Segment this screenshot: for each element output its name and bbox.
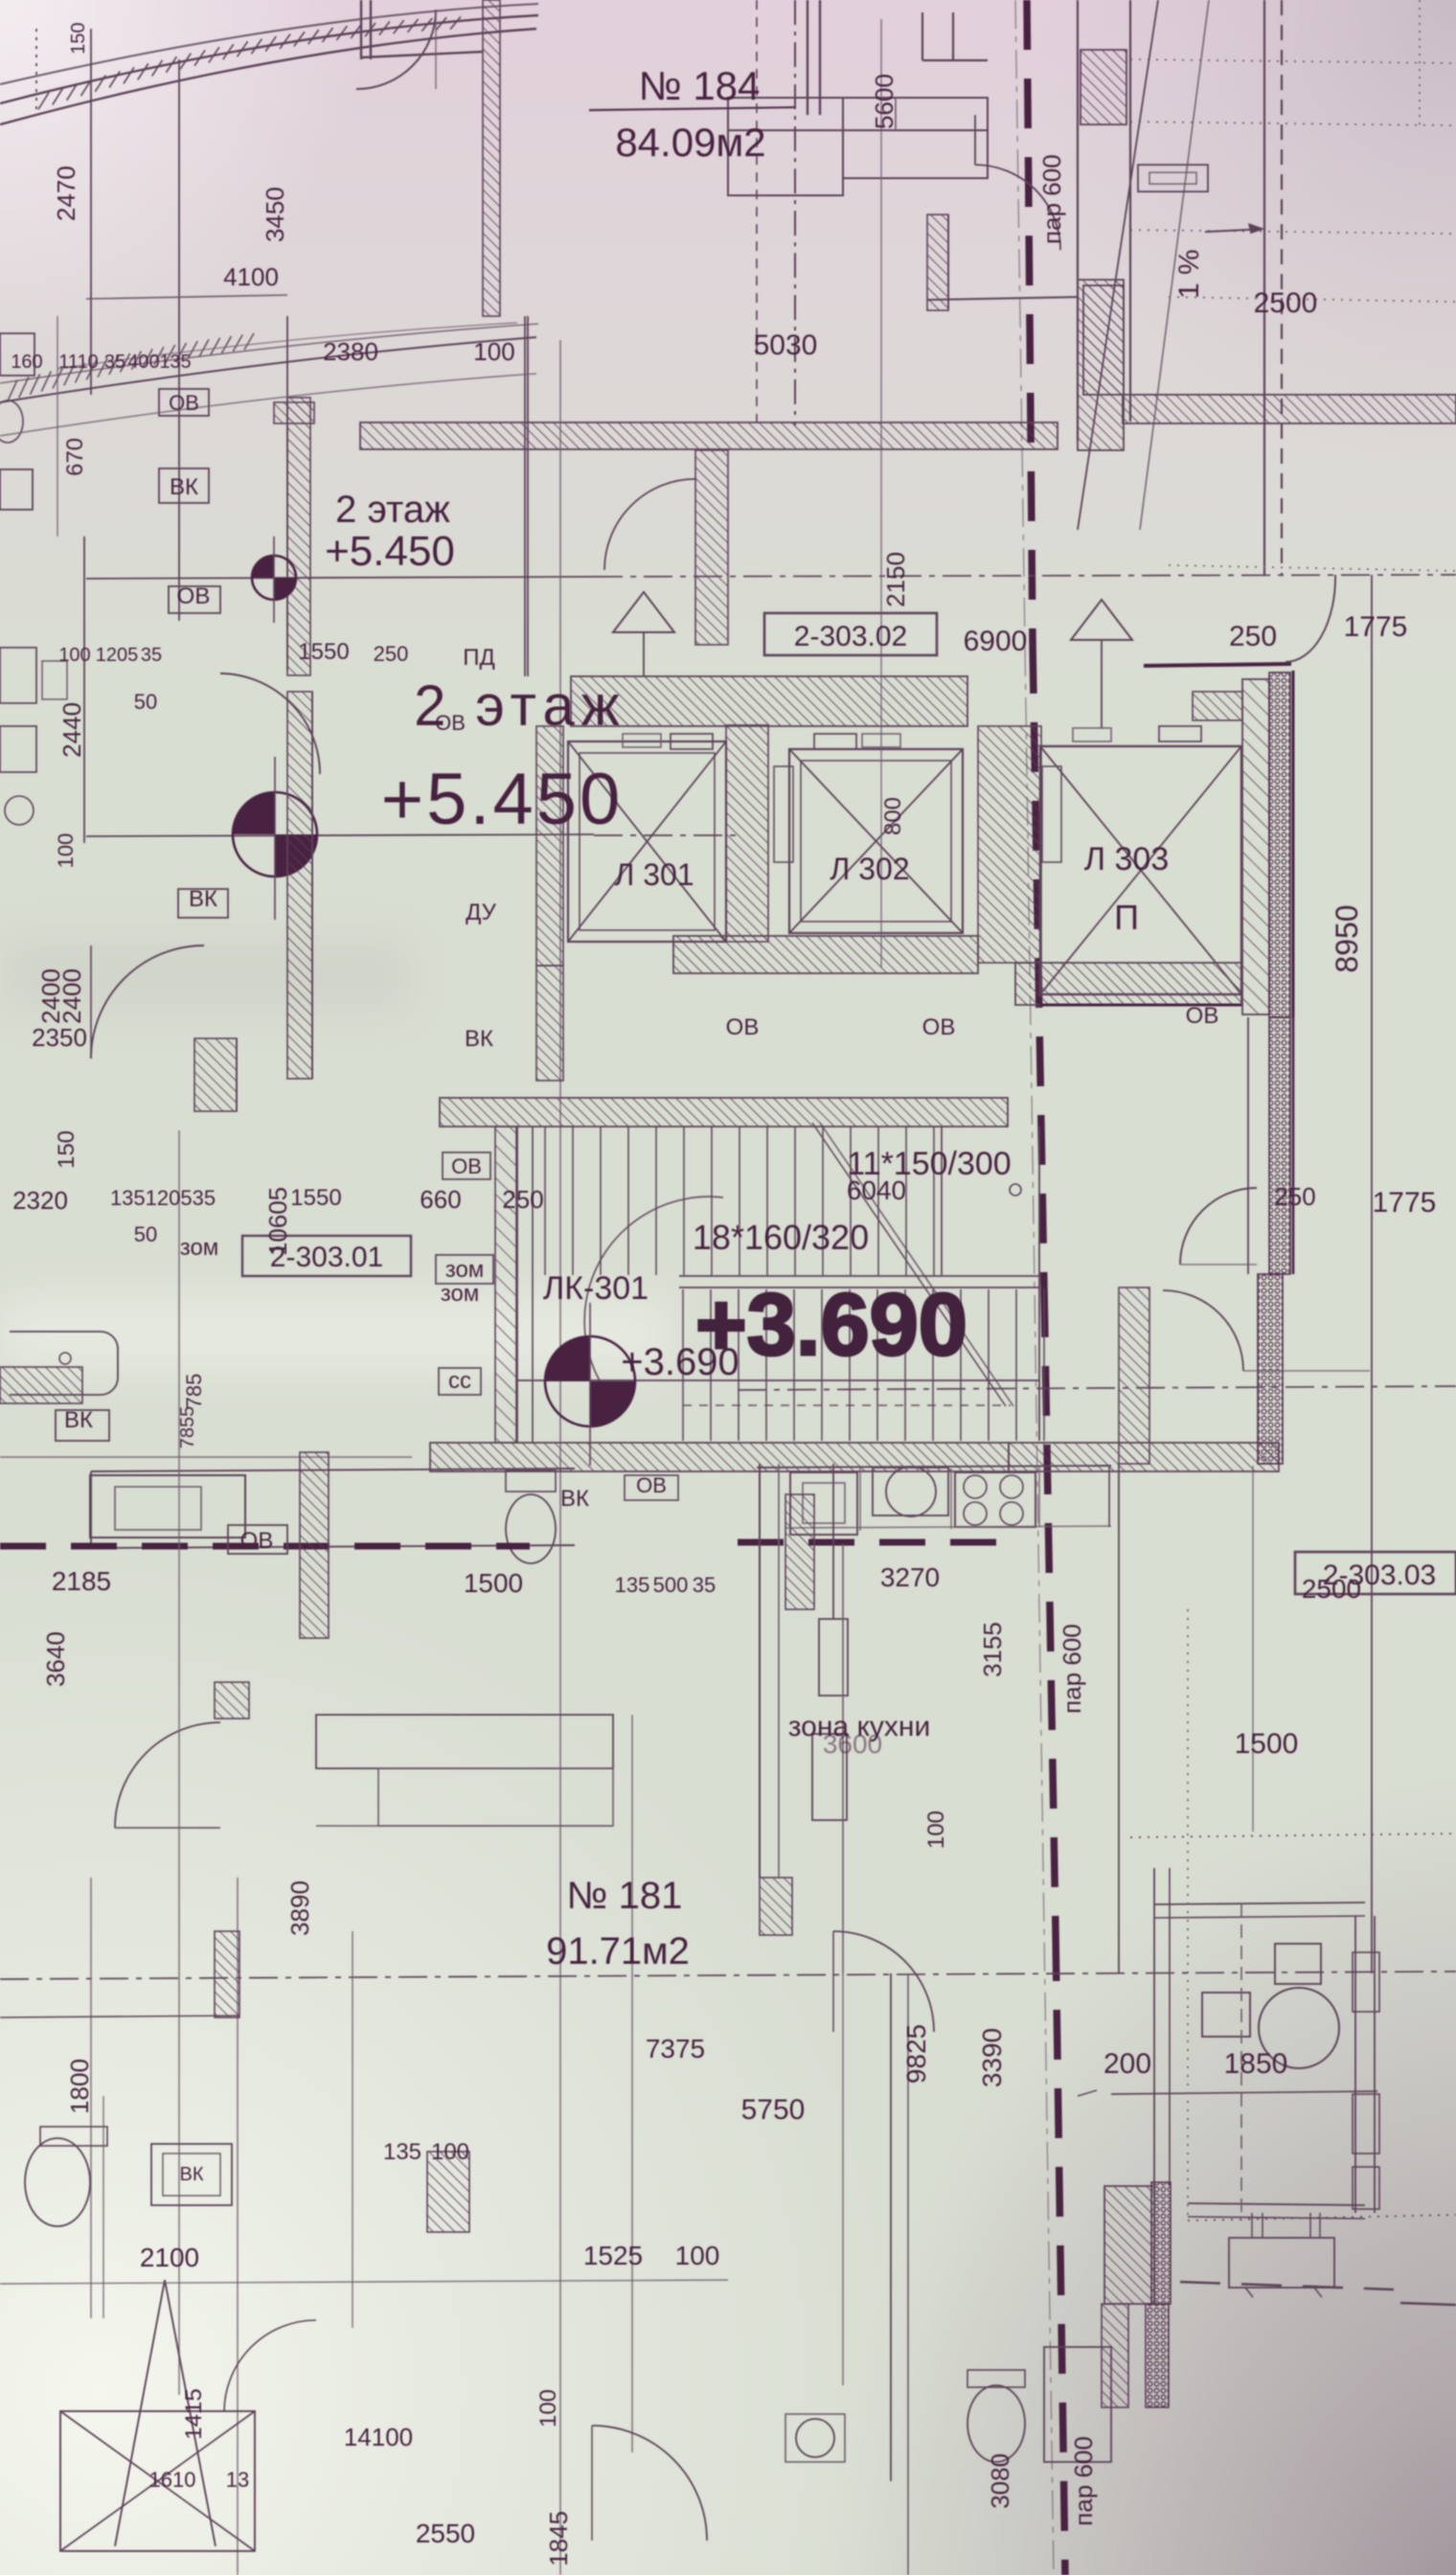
svg-text:135: 135 <box>615 1573 650 1597</box>
svg-text:ВК: ВК <box>170 474 198 500</box>
svg-text:ОВ: ОВ <box>169 391 199 415</box>
svg-text:+5.450: +5.450 <box>325 528 455 575</box>
svg-text:4100: 4100 <box>223 262 279 291</box>
svg-text:250: 250 <box>374 642 409 666</box>
svg-text:пар 600: пар 600 <box>1069 2436 1098 2526</box>
svg-text:Л 301: Л 301 <box>614 857 694 892</box>
svg-text:3450: 3450 <box>261 187 289 242</box>
svg-text:3155: 3155 <box>978 1622 1007 1677</box>
svg-text:ОВ: ОВ <box>636 1473 667 1497</box>
svg-text:1800: 1800 <box>65 2059 94 2114</box>
svg-text:2-303.02: 2-303.02 <box>794 621 907 652</box>
svg-text:3890: 3890 <box>285 1880 314 1936</box>
svg-text:2100: 2100 <box>140 2243 199 2272</box>
svg-text:3080: 3080 <box>986 2453 1014 2509</box>
svg-text:ЛК-301: ЛК-301 <box>543 1270 648 1307</box>
svg-text:400: 400 <box>127 352 159 373</box>
svg-text:250: 250 <box>1274 1182 1315 1211</box>
svg-text:1550: 1550 <box>290 1185 341 1211</box>
svg-text:13: 13 <box>226 2468 249 2492</box>
svg-text:100: 100 <box>58 645 90 666</box>
svg-text:2150: 2150 <box>881 552 910 607</box>
svg-text:1205: 1205 <box>96 645 139 666</box>
svg-text:8950: 8950 <box>1330 904 1364 972</box>
svg-text:ВК: ВК <box>64 1407 93 1433</box>
svg-text:135120535: 135120535 <box>110 1186 216 1210</box>
svg-text:1525: 1525 <box>583 2241 643 2270</box>
svg-text:1775: 1775 <box>1344 611 1408 643</box>
svg-text:250: 250 <box>1229 621 1277 652</box>
svg-text:250: 250 <box>502 1185 543 1214</box>
svg-text:2320: 2320 <box>12 1186 68 1215</box>
svg-text:800: 800 <box>880 797 906 835</box>
svg-text:50: 50 <box>134 690 157 714</box>
svg-text:2550: 2550 <box>416 2518 475 2548</box>
svg-text:зом: зом <box>445 1257 485 1283</box>
svg-text:сс: сс <box>448 1368 471 1394</box>
svg-text:ОВ: ОВ <box>435 711 466 735</box>
svg-text:2400: 2400 <box>36 968 65 1024</box>
svg-text:ОВ: ОВ <box>1186 1003 1219 1029</box>
svg-text:100: 100 <box>431 2139 469 2165</box>
svg-text:2440: 2440 <box>57 702 86 758</box>
svg-text:785: 785 <box>182 1374 206 1409</box>
svg-text:2500: 2500 <box>1254 287 1318 319</box>
svg-text:ОВ: ОВ <box>240 1528 274 1554</box>
svg-text:7855: 7855 <box>177 1406 198 1449</box>
svg-text:3390: 3390 <box>977 2028 1007 2087</box>
svg-text:ОВ: ОВ <box>922 1014 956 1040</box>
svg-text:84.09м2: 84.09м2 <box>615 120 765 165</box>
svg-text:+3.690: +3.690 <box>695 1276 967 1374</box>
svg-text:зом: зом <box>180 1235 219 1261</box>
svg-text:ОВ: ОВ <box>177 583 211 609</box>
svg-text:150: 150 <box>54 1130 80 1169</box>
svg-text:ВК: ВК <box>189 886 217 912</box>
svg-text:5600: 5600 <box>870 74 899 129</box>
svg-text:1500: 1500 <box>1235 1728 1299 1760</box>
svg-text:ДУ: ДУ <box>466 900 497 925</box>
svg-text:6900: 6900 <box>964 626 1028 657</box>
svg-text:100: 100 <box>923 1811 949 1849</box>
svg-text:14100: 14100 <box>344 2423 413 2451</box>
svg-text:35: 35 <box>693 1573 716 1597</box>
svg-text:2 этаж: 2 этаж <box>335 489 450 531</box>
svg-text:1775: 1775 <box>1373 1187 1437 1219</box>
svg-text:1 %: 1 % <box>1173 249 1205 299</box>
svg-text:ВК: ВК <box>560 1486 589 1512</box>
svg-text:ВК: ВК <box>465 1026 493 1052</box>
svg-text:ОВ: ОВ <box>726 1014 760 1040</box>
svg-text:№ 184: № 184 <box>639 63 761 108</box>
svg-text:3270: 3270 <box>880 1562 940 1592</box>
svg-text:35: 35 <box>141 645 162 666</box>
svg-text:100: 100 <box>473 337 514 366</box>
svg-text:2350: 2350 <box>32 1023 87 1052</box>
svg-text:5750: 5750 <box>741 2094 806 2126</box>
svg-text:6040: 6040 <box>847 1175 906 1205</box>
svg-text:100: 100 <box>54 833 78 869</box>
svg-text:135: 135 <box>159 352 191 373</box>
svg-text:660: 660 <box>420 1185 461 1214</box>
svg-text:91.71м2: 91.71м2 <box>546 1930 690 1972</box>
svg-text:670: 670 <box>62 438 88 476</box>
svg-text:1550: 1550 <box>298 639 349 665</box>
svg-text:2380: 2380 <box>323 337 378 366</box>
svg-text:1110: 1110 <box>58 352 99 373</box>
svg-text:1850: 1850 <box>1224 2048 1288 2080</box>
svg-text:3600: 3600 <box>823 1729 882 1759</box>
svg-text:пар 600: пар 600 <box>1058 1624 1086 1714</box>
svg-text:5030: 5030 <box>754 330 818 361</box>
svg-text:зом: зом <box>441 1281 480 1307</box>
svg-text:2500: 2500 <box>1302 1574 1361 1604</box>
svg-text:пар 600: пар 600 <box>1037 154 1066 244</box>
svg-text:2185: 2185 <box>52 1566 111 1596</box>
svg-text:1415: 1415 <box>181 2388 207 2439</box>
svg-text:35: 35 <box>104 352 125 373</box>
svg-text:50: 50 <box>134 1222 157 1246</box>
svg-text:2470: 2470 <box>52 166 80 221</box>
svg-text:2-303.01: 2-303.01 <box>270 1242 383 1273</box>
svg-text:ПД: ПД <box>463 645 495 671</box>
svg-text:ОВ: ОВ <box>451 1154 482 1178</box>
svg-text:3640: 3640 <box>41 1631 70 1687</box>
svg-text:150: 150 <box>68 22 89 54</box>
svg-text:7375: 7375 <box>646 2034 705 2063</box>
svg-text:№ 181: № 181 <box>567 1875 683 1917</box>
svg-text:+5.450: +5.450 <box>381 759 624 840</box>
svg-text:200: 200 <box>1103 2048 1151 2080</box>
svg-text:П: П <box>1114 898 1139 937</box>
svg-text:9825: 9825 <box>901 2024 931 2084</box>
svg-text:100: 100 <box>535 2389 561 2427</box>
svg-text:1500: 1500 <box>464 1568 523 1598</box>
svg-text:ВК: ВК <box>180 2164 204 2185</box>
svg-text:100: 100 <box>675 2241 720 2270</box>
svg-text:18*160/320: 18*160/320 <box>693 1218 869 1257</box>
svg-text:Л 302: Л 302 <box>830 852 909 886</box>
svg-text:500: 500 <box>653 1573 689 1597</box>
svg-text:135: 135 <box>383 2139 421 2165</box>
svg-text:1610: 1610 <box>149 2468 196 2492</box>
svg-text:1845: 1845 <box>544 2511 573 2566</box>
svg-text:Л 303: Л 303 <box>1084 841 1170 877</box>
svg-text:160: 160 <box>11 352 42 373</box>
